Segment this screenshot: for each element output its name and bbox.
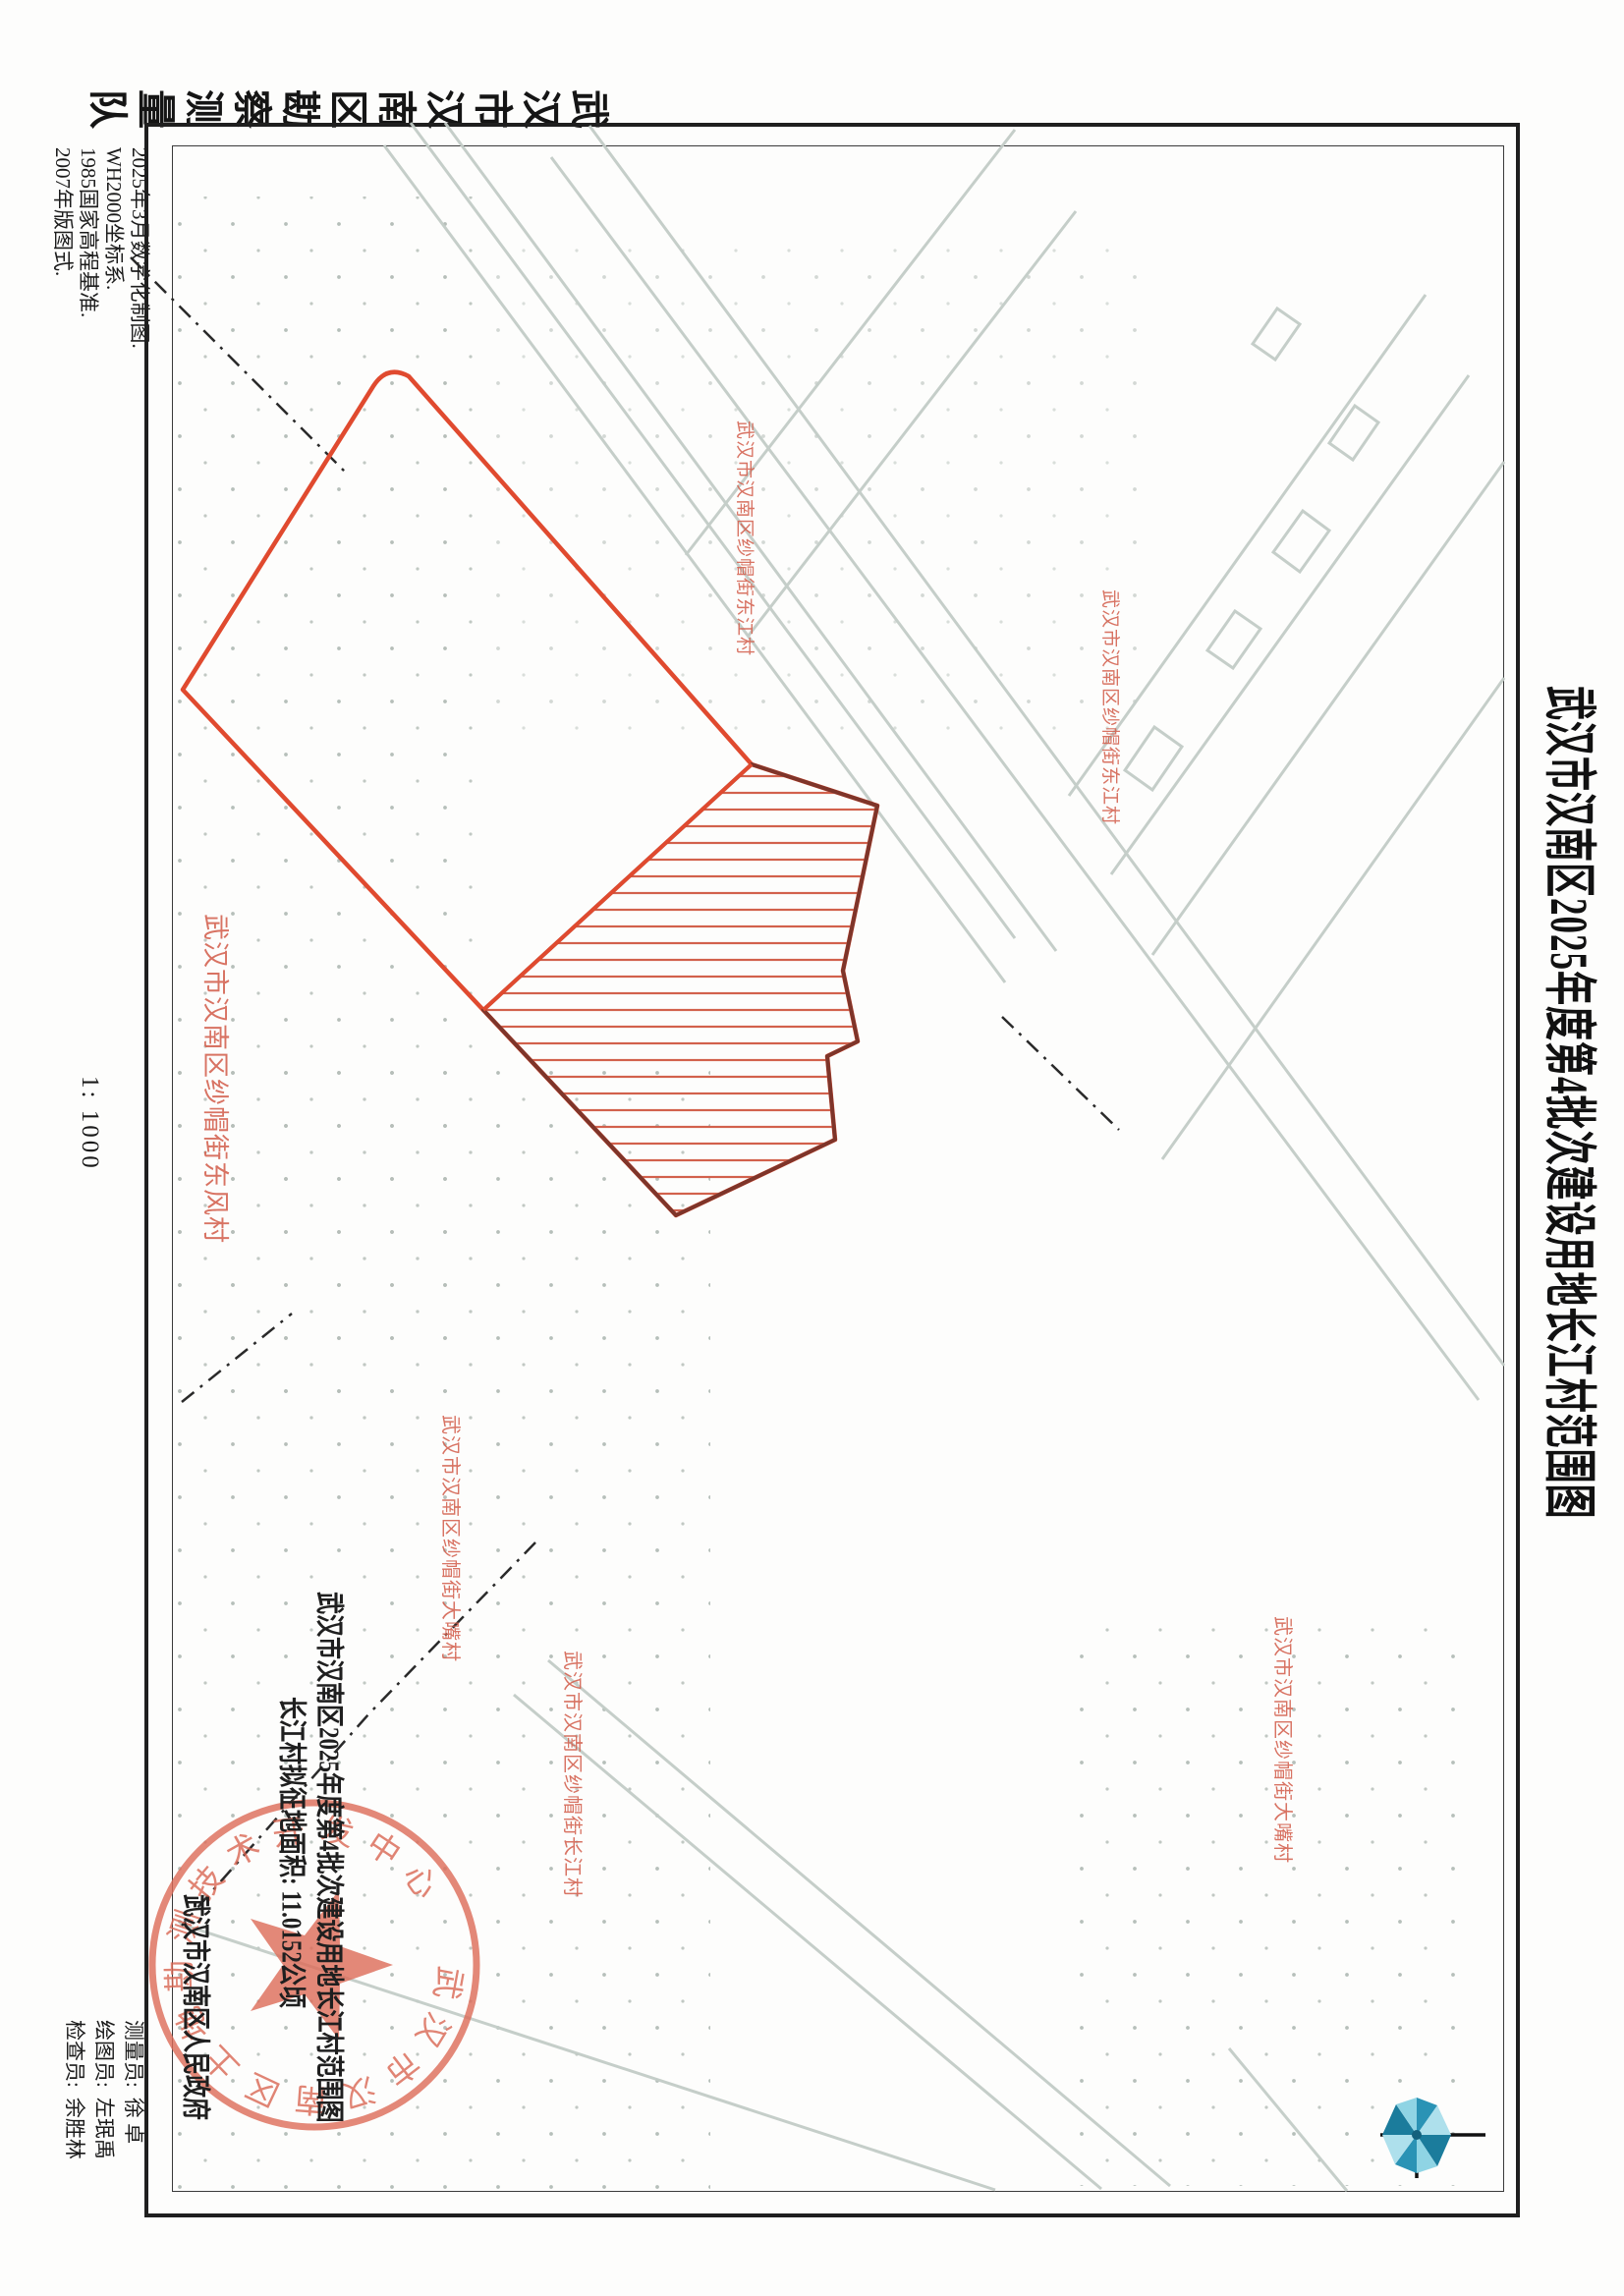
village-label: 武汉市汉南区纱帽街东风村 [198,914,237,1244]
government-name: 武汉市汉南区人民政府 [178,1894,220,2120]
village-label: 武汉市汉南区纱帽街长江村 [560,1651,588,1898]
announcement-line1: 武汉市汉南区2025年度第4批次建设用地长江村范围图 [311,1592,354,2123]
village-label: 武汉市汉南区纱帽街大嘴村 [438,1415,467,1662]
village-label: 武汉市汉南区纱帽街大嘴村 [1270,1616,1299,1864]
village-label: 武汉市汉南区纱帽街东江村 [733,420,759,656]
scanned-map-page: 武汉市汉南区2025年度第4批次建设用地长江村范围图 武汉市汉南区勘察测量队 2… [0,0,1624,2296]
announcement-line2: 长江村拟征地面积: 11.0152公顷 [274,1697,316,2008]
village-label: 武汉市汉南区纱帽街东江村 [1098,589,1125,825]
map-sheet-landscape: 武汉市汉南区2025年度第4批次建设用地长江村范围图 武汉市汉南区勘察测量队 2… [0,0,1624,2296]
map-canvas: 武汉市汉南区土地勘测技术开发中心 [0,0,1624,2296]
